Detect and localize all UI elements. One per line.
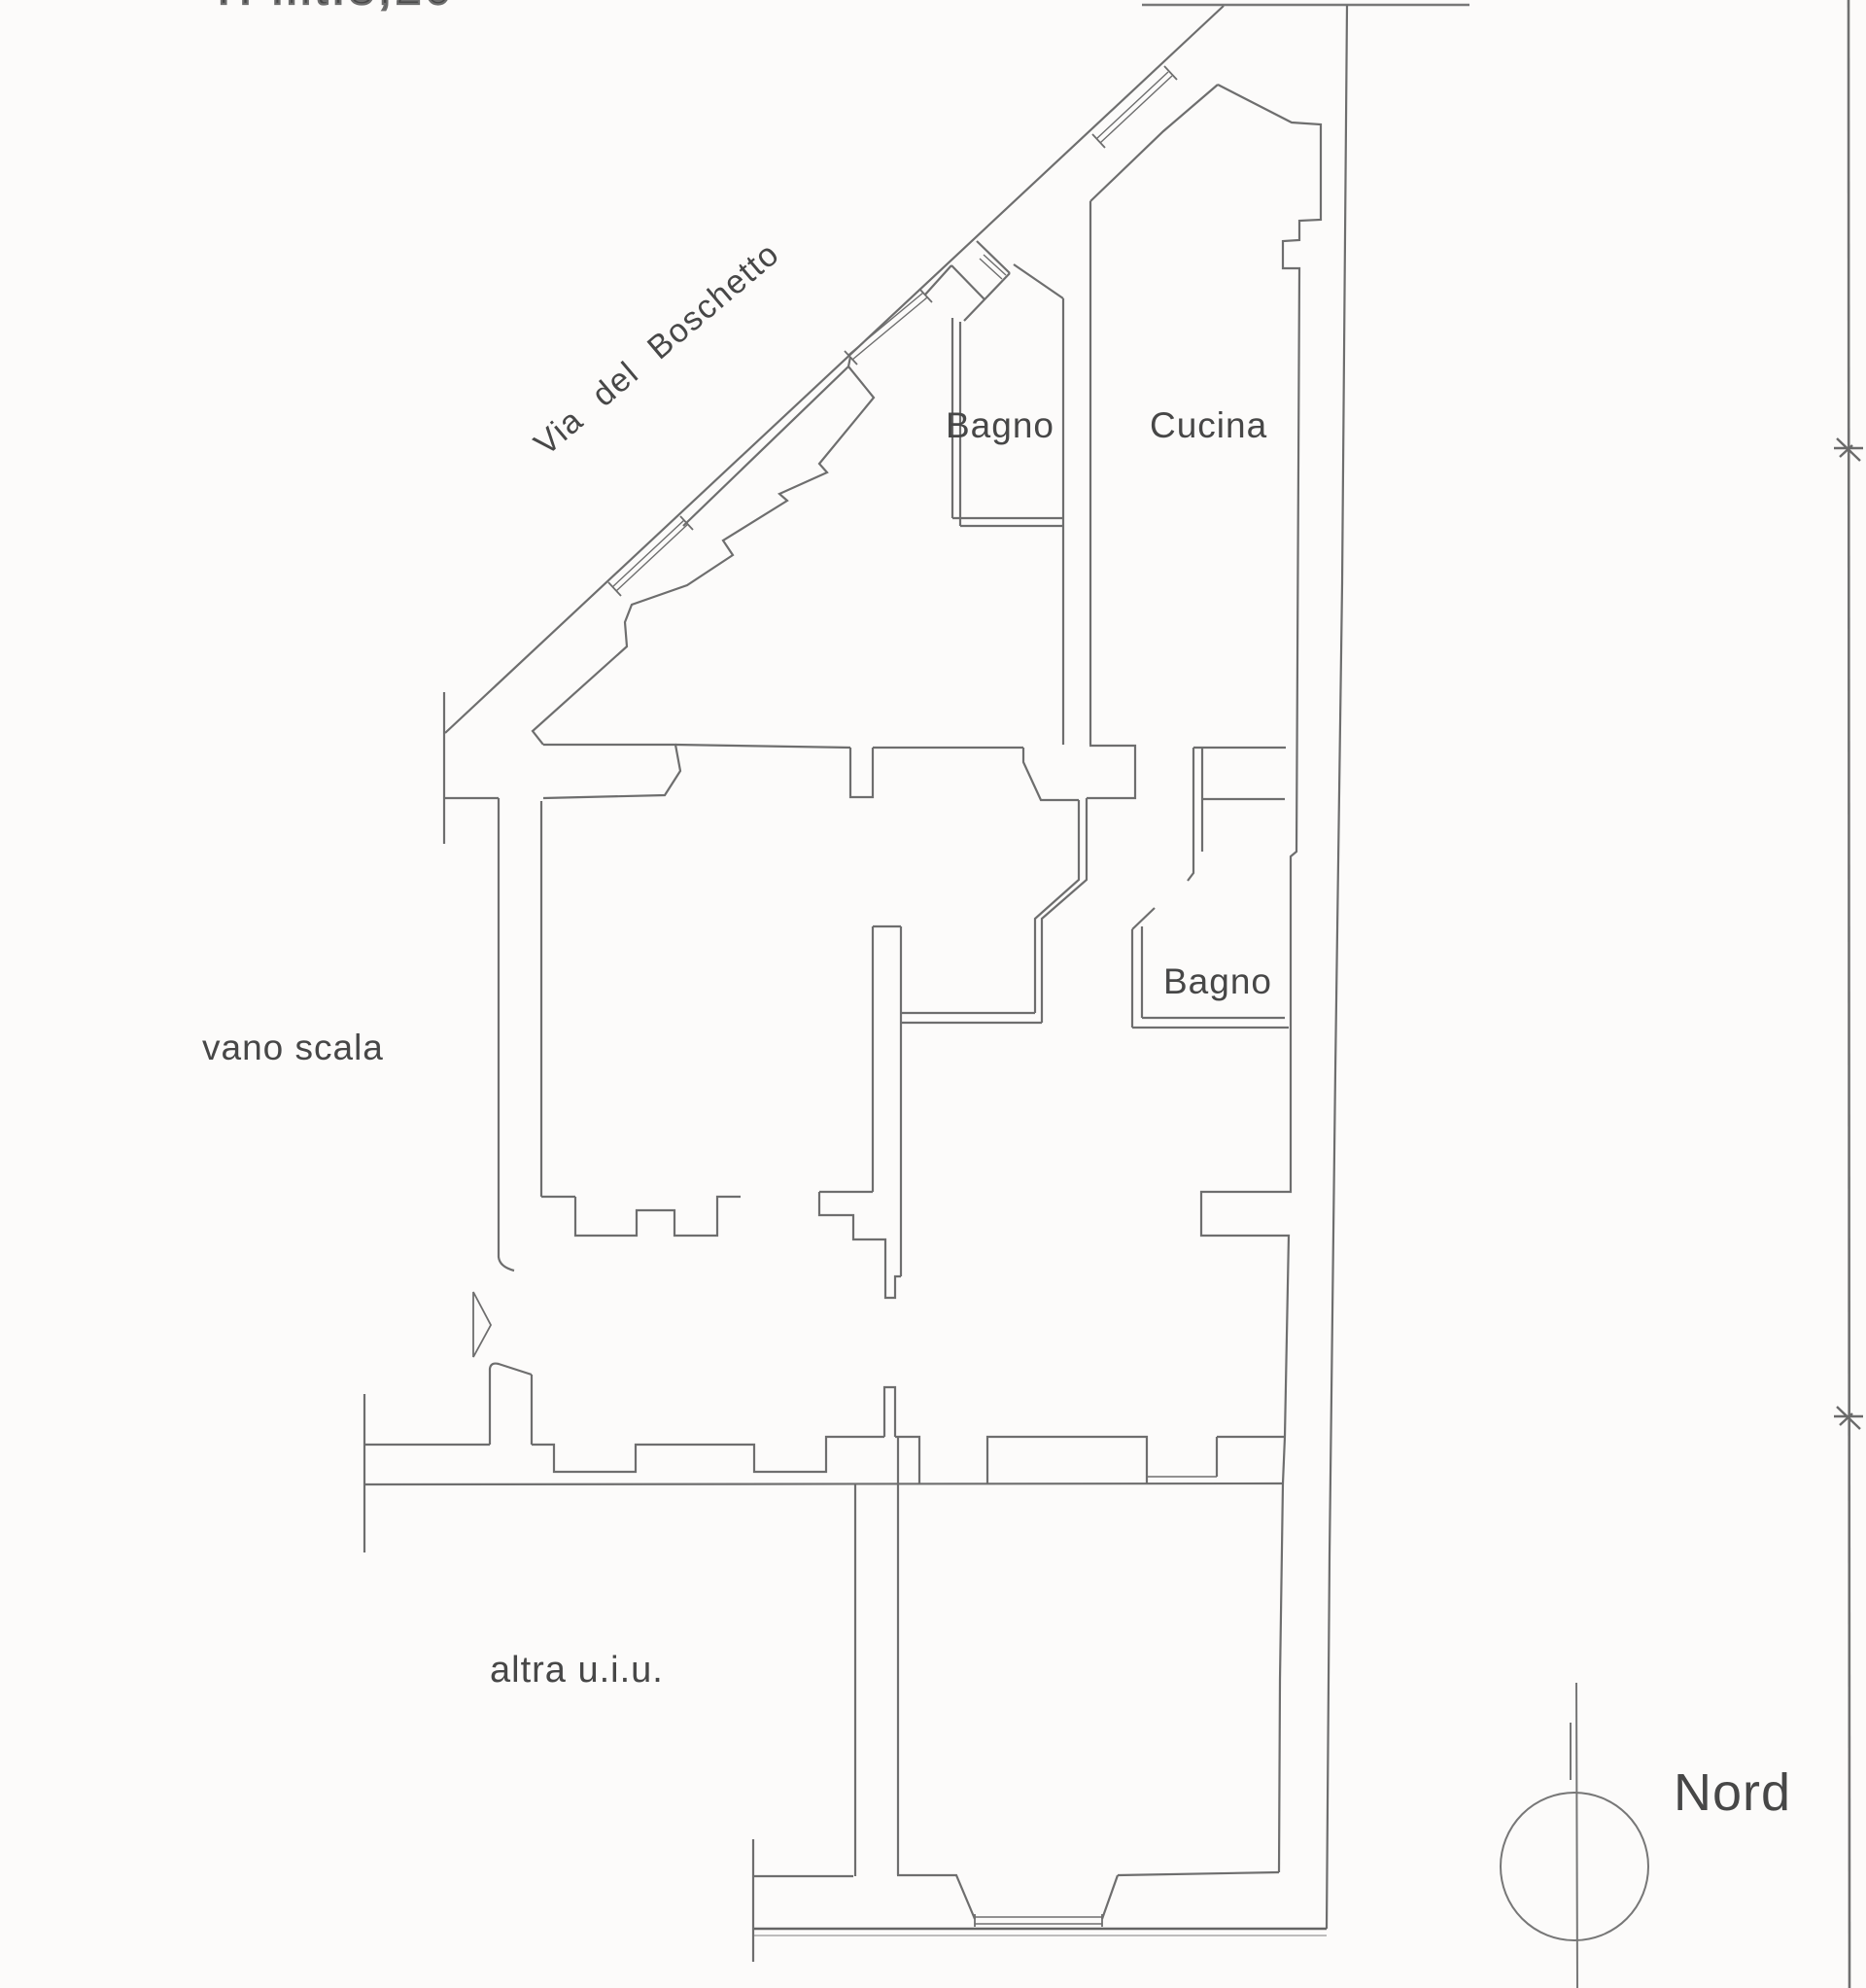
svg-text:Via del Boschetto: Via del Boschetto — [528, 235, 787, 463]
svg-text:altra u.i.u.: altra u.i.u. — [490, 1650, 664, 1691]
svg-text:Nord: Nord — [1674, 1763, 1791, 1822]
svg-text:Bagno: Bagno — [1163, 961, 1272, 1001]
svg-text:H mt.3,20: H mt.3,20 — [218, 0, 455, 15]
svg-text:Cucina: Cucina — [1150, 405, 1267, 445]
svg-text:Bagno: Bagno — [946, 405, 1054, 445]
svg-text:vano scala: vano scala — [202, 1028, 384, 1067]
